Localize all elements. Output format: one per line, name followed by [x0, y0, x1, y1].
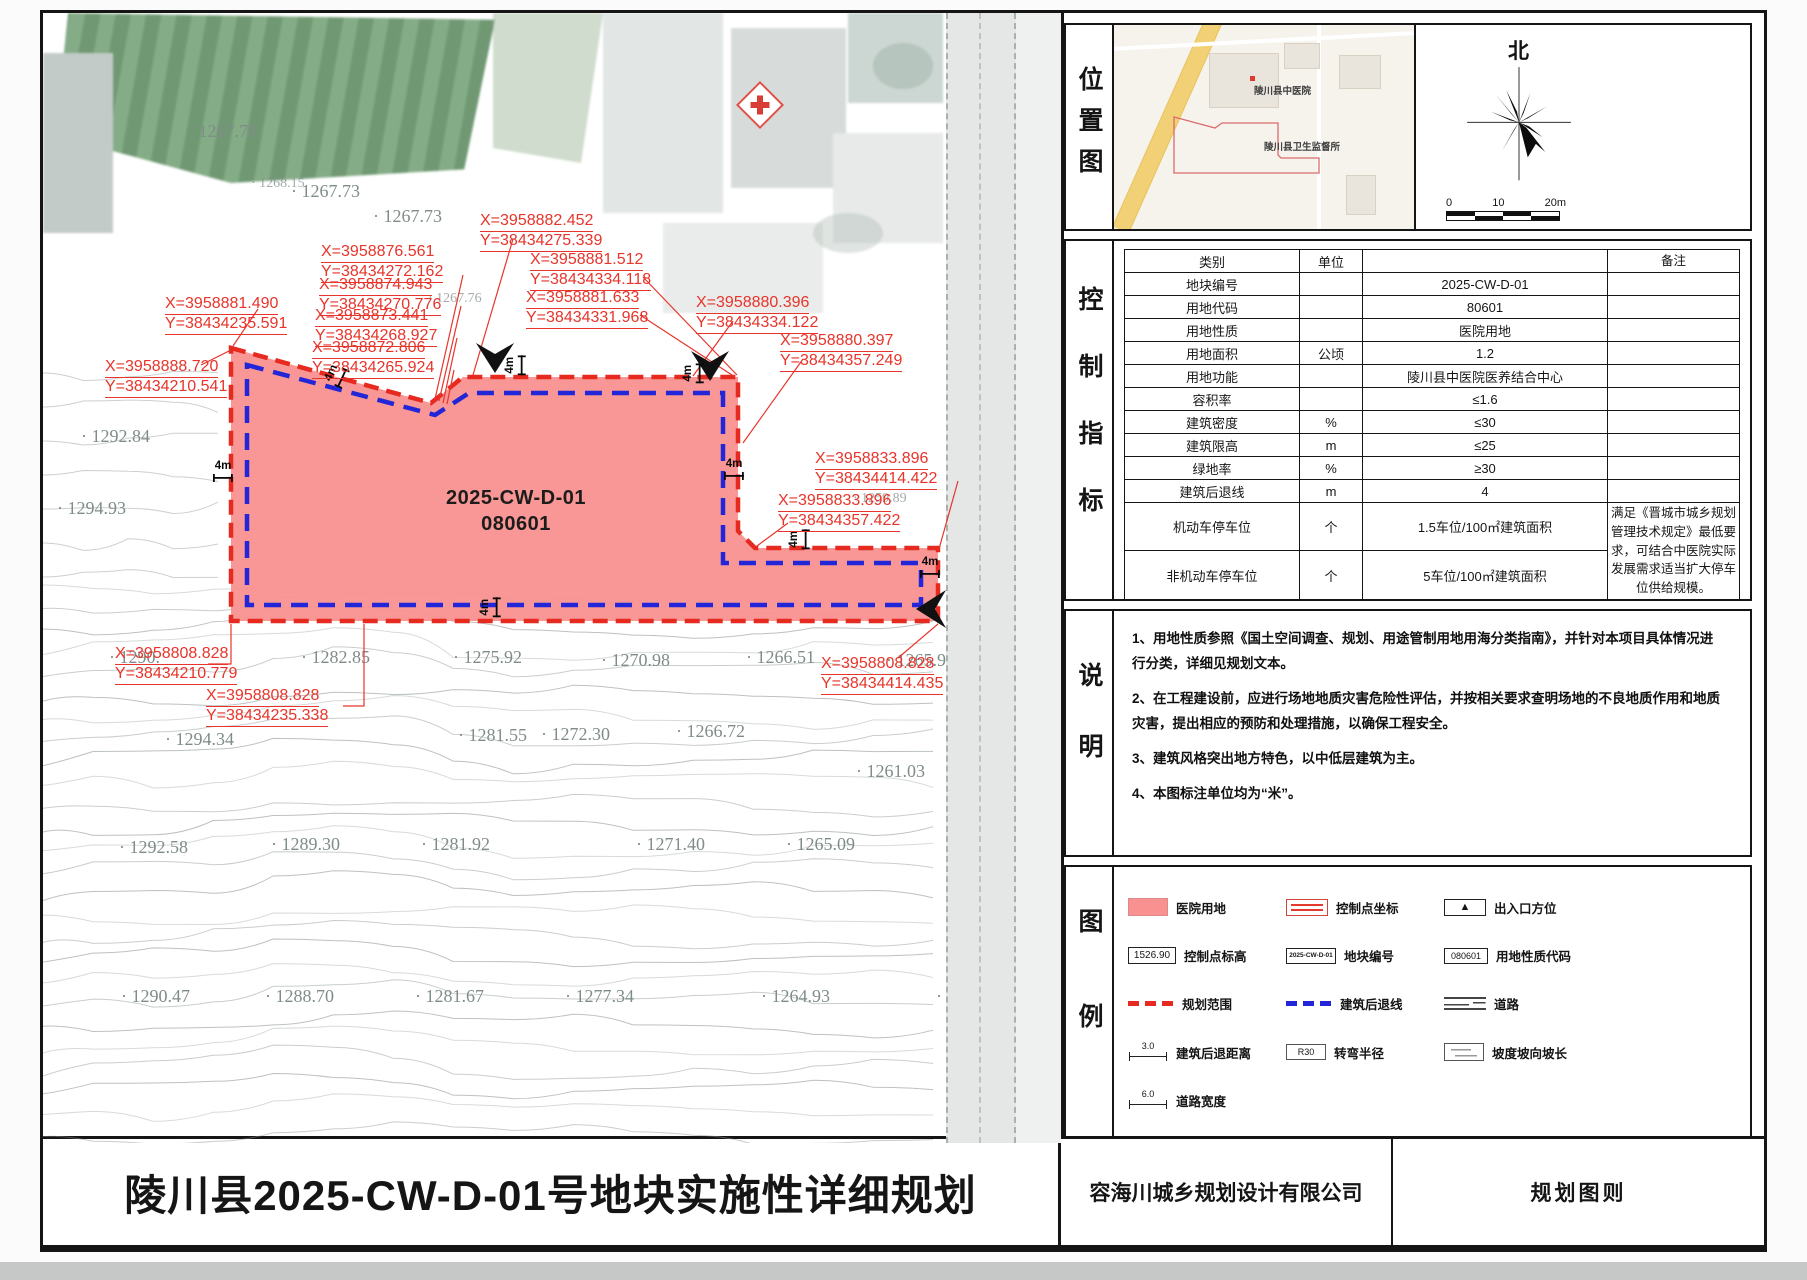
legend-item: 6.0 道路宽度 [1128, 1091, 1286, 1111]
legend-icon: 6.0 [1128, 1092, 1168, 1109]
legend-label: 用地性质代码 [1496, 946, 1571, 965]
indicator-row: 机动车停车位 个 1.5车位/100㎡建筑面积 满足《晋城市城乡规划管理技术规定… [1125, 503, 1740, 551]
legend-label: 控制点标高 [1184, 946, 1247, 965]
legend-item: 坡度坡向坡长 [1444, 1042, 1602, 1062]
legend-icon: 1526.90 [1128, 947, 1176, 964]
coordinate-label: X=3958888.720Y=38434210.541 [105, 358, 227, 398]
indicator-row: 用地功能 陵川县中医院医养结合中心 [1125, 365, 1740, 388]
company-name: 容海川城乡规划设计有限公司 [1061, 1139, 1393, 1245]
health-office-label: 陵川县卫生监督所 [1264, 139, 1340, 153]
legend-label: 坡度坡向坡长 [1492, 1043, 1567, 1062]
legend-item: 3.0 建筑后退距离 [1128, 1042, 1286, 1062]
coordinate-label: X=3958808.828Y=38434235.338 [206, 687, 328, 727]
coordinate-label: X=3958881.633Y=38434331.968 [526, 289, 648, 329]
legend-item: 1526.90 控制点标高 [1128, 945, 1286, 965]
scale-tick: 10 [1492, 197, 1504, 209]
map-area: 1267.701268.151267.731267.731267.761292.… [43, 13, 1061, 1143]
coordinate-labels: X=3958888.720Y=38434210.541 X=3958881.49… [43, 13, 1061, 1143]
indicator-row: 用地代码 80601 [1125, 296, 1740, 319]
title-bar: 陵川县2025-CW-D-01号地块实施性详细规划 容海川城乡规划设计有限公司 … [43, 1136, 1764, 1245]
coordinate-label: X=3958882.452Y=38434275.339 [480, 212, 602, 252]
coordinate-label: X=3958808.828Y=38434414.435 [821, 655, 943, 695]
section-legend-label: 图例 [1066, 867, 1114, 1139]
scale-tick: 20m [1545, 197, 1566, 209]
indicator-row: 建筑后退线 m 4 [1125, 480, 1740, 503]
coordinate-label: X=3958833.896Y=38434414.422 [815, 450, 937, 490]
legend-icon: 080601 [1444, 948, 1488, 964]
coordinate-label: X=3958880.397Y=38434357.249 [780, 332, 902, 372]
coordinate-label: X=3958881.512Y=38434334.118 [530, 251, 651, 291]
legend-item: 建筑后退线 [1286, 994, 1444, 1014]
indicator-row: 绿地率 % ≥30 [1125, 457, 1740, 480]
note-item: 3、建筑风格突出地方特色，以中低层建筑为主。 [1132, 747, 1726, 772]
coordinate-label: X=3958872.806Y=38434265.924 [312, 339, 434, 379]
legend-label: 道路宽度 [1176, 1091, 1226, 1110]
legend-icon: ▲ [1444, 899, 1486, 916]
legend-item: 规划范围 [1128, 994, 1286, 1014]
legend-icon [1128, 1001, 1174, 1006]
north-arrow-icon [1444, 55, 1594, 183]
section-indicators: 控制指标 类别 单位 备注 地块编号 [1064, 239, 1752, 601]
indicator-row: 建筑限高 m ≤25 [1125, 434, 1740, 457]
section-legend: 图例 医院用地 控制点坐标 ▲ 出入口方位 1 [1064, 865, 1752, 1141]
legend-icon: R30 [1286, 1044, 1326, 1060]
legend-label: 规划范围 [1182, 994, 1232, 1013]
hospital-label: 陵川县中医院 [1254, 83, 1311, 97]
legend-icon [1286, 1001, 1332, 1006]
indicators-content: 类别 单位 备注 地块编号 2025-CW-D-01 [1114, 241, 1750, 599]
legend-icon [1128, 898, 1168, 916]
legend-label: 出入口方位 [1494, 898, 1557, 917]
indicator-row: 用地面积 公顷 1.2 [1125, 342, 1740, 365]
legend-item: 医院用地 [1128, 897, 1286, 917]
legend-label: 建筑后退距离 [1176, 1043, 1251, 1062]
sheet-title: 陵川县2025-CW-D-01号地块实施性详细规划 [43, 1139, 1061, 1245]
sheet-type: 规划图则 [1393, 1139, 1764, 1245]
page-bottom-strip [0, 1262, 1807, 1280]
notes-list: 1、用地性质参照《国土空间调查、规划、用途管制用地用海分类指南》，并针对本项目具… [1114, 611, 1750, 855]
scale-bar: 0 10 20m [1446, 197, 1566, 221]
legend-label: 地块编号 [1344, 946, 1394, 965]
location-map: 陵川县中医院 陵川县卫生监督所 [1114, 25, 1416, 229]
legend-icon [1286, 899, 1328, 916]
indicator-row: 地块编号 2025-CW-D-01 [1125, 273, 1740, 296]
legend-item: 2025-CW-D-01 地块编号 [1286, 945, 1444, 965]
indicator-row: 类别 单位 备注 [1125, 250, 1740, 273]
indicator-row: 建筑密度 % ≤30 [1125, 411, 1740, 434]
legend-label: 医院用地 [1176, 898, 1226, 917]
legend-item: 080601 用地性质代码 [1444, 945, 1602, 965]
legend-icon: 3.0 [1128, 1044, 1168, 1061]
legend-icon [1444, 1043, 1484, 1061]
section-indicators-label: 控制指标 [1066, 241, 1114, 599]
legend-label: 转弯半径 [1334, 1043, 1384, 1062]
plan-sheet: 1267.701268.151267.731267.731267.761292.… [40, 10, 1767, 1252]
section-notes: 说明 1、用地性质参照《国土空间调查、规划、用途管制用地用海分类指南》，并针对本… [1064, 609, 1752, 857]
legend-item: R30 转弯半径 [1286, 1042, 1444, 1062]
legend-icon [1444, 997, 1486, 1010]
north-area: 北 [1416, 25, 1750, 229]
note-item: 2、在工程建设前，应进行场地地质灾害危险性评估，并按相关要求查明场地的不良地质作… [1132, 687, 1726, 737]
info-panel: 位置图 陵川县中医院 陵川县卫生监督所 [1061, 13, 1764, 1143]
scale-bar-segments [1446, 211, 1560, 221]
legend-grid: 医院用地 控制点坐标 ▲ 出入口方位 1526.90 控制点标高 2025-CW… [1114, 867, 1750, 1139]
note-item: 1、用地性质参照《国土空间调查、规划、用途管制用地用海分类指南》，并针对本项目具… [1132, 627, 1726, 677]
coordinate-label: X=3958881.490Y=38434235.591 [165, 295, 287, 335]
sheet-main: 1267.701268.151267.731267.731267.761292.… [43, 13, 1764, 1143]
legend-label: 建筑后退线 [1340, 994, 1403, 1013]
indicator-row: 容积率 ≤1.6 [1125, 388, 1740, 411]
legend-label: 道路 [1494, 994, 1519, 1013]
note-item: 4、本图标注单位均为“米”。 [1132, 782, 1726, 807]
indicator-row: 用地性质 医院用地 [1125, 319, 1740, 342]
coordinate-label: X=3958833.896Y=38434357.422 [778, 492, 900, 532]
legend-icon: 2025-CW-D-01 [1286, 948, 1336, 964]
section-location: 位置图 陵川县中医院 陵川县卫生监督所 [1064, 23, 1752, 231]
legend-item: ▲ 出入口方位 [1444, 897, 1602, 917]
coordinate-label: X=3958808.828Y=38434210.779 [115, 645, 237, 685]
section-location-label: 位置图 [1066, 25, 1114, 229]
legend-label: 控制点坐标 [1336, 898, 1399, 917]
location-map-parcel-outline [1114, 25, 1414, 229]
poi-dot-icon [1250, 76, 1255, 81]
legend-item: 控制点坐标 [1286, 897, 1444, 917]
section-notes-label: 说明 [1066, 611, 1114, 855]
scale-tick: 0 [1446, 197, 1452, 209]
coordinate-label: X=3958880.396Y=38434334.122 [696, 294, 818, 334]
indicators-table: 类别 单位 备注 地块编号 2025-CW-D-01 [1124, 249, 1740, 600]
legend-item: 道路 [1444, 994, 1602, 1014]
